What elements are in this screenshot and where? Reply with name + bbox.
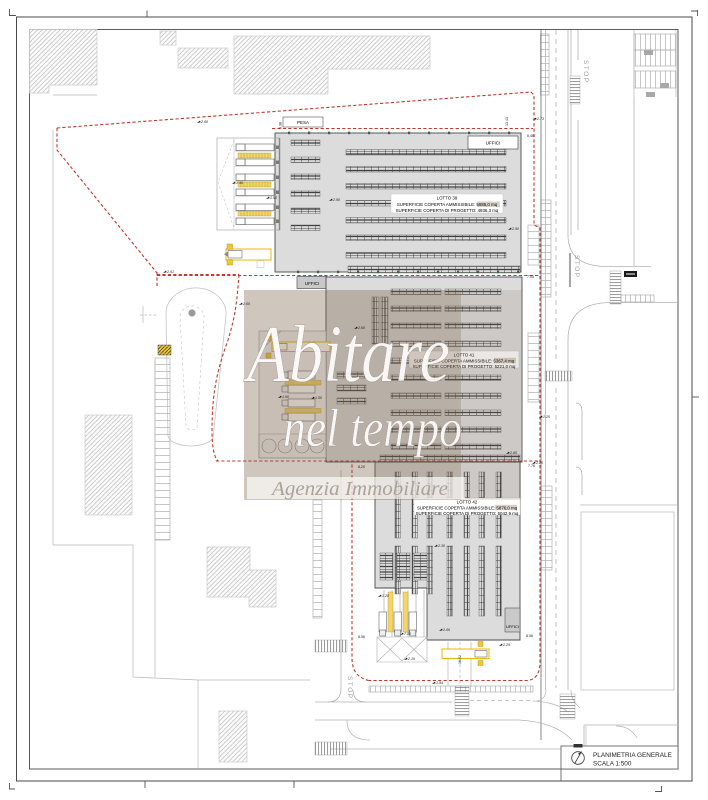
svg-text:PESA: PESA xyxy=(297,120,309,125)
svg-text:2.60: 2.60 xyxy=(200,120,208,124)
svg-text:7.05: 7.05 xyxy=(527,275,534,279)
svg-text:STOP: STOP xyxy=(573,255,580,279)
svg-text:UFFICI: UFFICI xyxy=(305,281,319,286)
svg-text:2.29: 2.29 xyxy=(502,643,510,647)
svg-text:SUPERFICIE COPERTA DI PROGETTO: SUPERFICIE COPERTA DI PROGETTO: 4936,3 m… xyxy=(396,208,499,213)
svg-text:Abitare: Abitare xyxy=(243,308,450,399)
svg-text:STOP: STOP xyxy=(582,60,589,84)
svg-text:SUPERFICIE COPERTA AMMISSIBILE: SUPERFICIE COPERTA AMMISSIBILE: 5876,0 m… xyxy=(417,505,518,510)
svg-text:2.25: 2.25 xyxy=(535,461,543,465)
svg-text:SUPERFICIE COPERTA DI PROGETTO: SUPERFICIE COPERTA DI PROGETTO: 5042,9 m… xyxy=(416,511,519,516)
svg-text:UFFICI: UFFICI xyxy=(486,141,501,146)
svg-text:SUPERFICIE COPERTA AMMISSIBILE: SUPERFICIE COPERTA AMMISSIBILE: 5985,0 m… xyxy=(397,202,498,207)
svg-text:1.94: 1.94 xyxy=(436,681,443,685)
svg-text:2.73: 2.73 xyxy=(536,117,544,121)
svg-text:6,46: 6,46 xyxy=(527,134,534,138)
svg-text:7.30: 7.30 xyxy=(404,632,411,636)
svg-text:7.76: 7.76 xyxy=(528,464,535,468)
svg-text:2.25: 2.25 xyxy=(542,415,550,419)
svg-text:UFFICI: UFFICI xyxy=(506,624,519,629)
svg-text:2.60: 2.60 xyxy=(357,326,365,330)
svg-text:PLANIMETRIA GENERALE: PLANIMETRIA GENERALE xyxy=(593,752,672,759)
svg-text:2.60: 2.60 xyxy=(242,302,250,306)
svg-text:2.61: 2.61 xyxy=(166,270,174,274)
svg-text:8.56: 8.56 xyxy=(358,635,365,639)
svg-text:2.10: 2.10 xyxy=(407,657,415,661)
svg-text:2.30: 2.30 xyxy=(437,544,445,548)
svg-text:2.66: 2.66 xyxy=(442,628,450,632)
svg-text:1.60: 1.60 xyxy=(282,395,289,399)
svg-text:8,20: 8,20 xyxy=(358,465,365,469)
svg-text:2.90: 2.90 xyxy=(332,198,340,202)
svg-text:Agenzia Immobiliare: Agenzia Immobiliare xyxy=(270,478,448,500)
svg-text:1.90: 1.90 xyxy=(236,181,243,185)
svg-text:nel tempo: nel tempo xyxy=(283,398,462,458)
svg-text:LOTTO 42: LOTTO 42 xyxy=(457,499,478,504)
svg-text:1.50: 1.50 xyxy=(315,396,322,400)
svg-text:1.90: 1.90 xyxy=(270,196,277,200)
svg-text:2.90: 2.90 xyxy=(511,227,519,231)
svg-text:SCALA 1:500: SCALA 1:500 xyxy=(593,761,632,768)
svg-text:STOP: STOP xyxy=(346,676,353,700)
svg-text:8.56: 8.56 xyxy=(526,634,533,638)
svg-text:1.20: 1.20 xyxy=(382,594,389,598)
svg-text:9.38: 9.38 xyxy=(279,122,283,129)
svg-text:LOTTO 39: LOTTO 39 xyxy=(437,196,458,201)
svg-text:2.60: 2.60 xyxy=(509,451,517,455)
svg-text:16.52: 16.52 xyxy=(458,655,462,664)
svg-text:13.41: 13.41 xyxy=(505,117,509,126)
